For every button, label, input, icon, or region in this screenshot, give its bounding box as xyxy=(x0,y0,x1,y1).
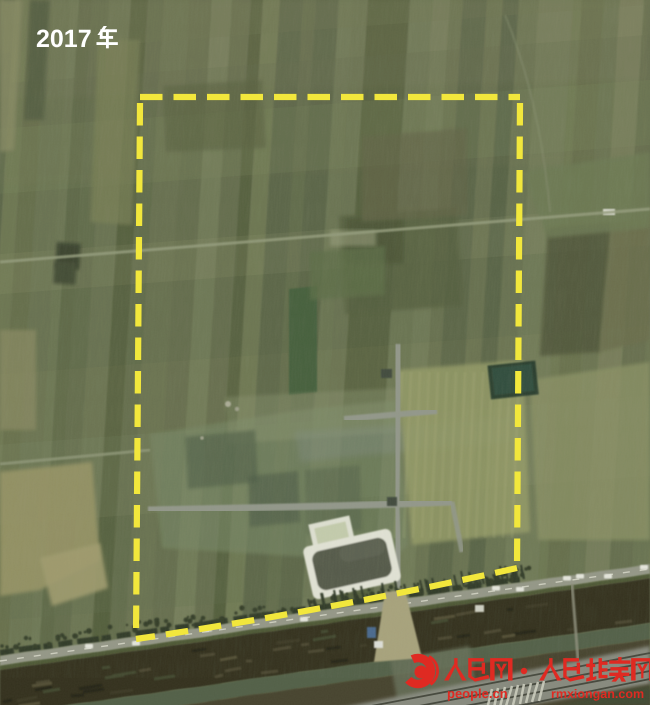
svg-text:2017: 2017 xyxy=(36,25,92,53)
svg-text:people.cn: people.cn xyxy=(447,686,508,701)
svg-text:rmxiongan.com: rmxiongan.com xyxy=(551,687,644,701)
